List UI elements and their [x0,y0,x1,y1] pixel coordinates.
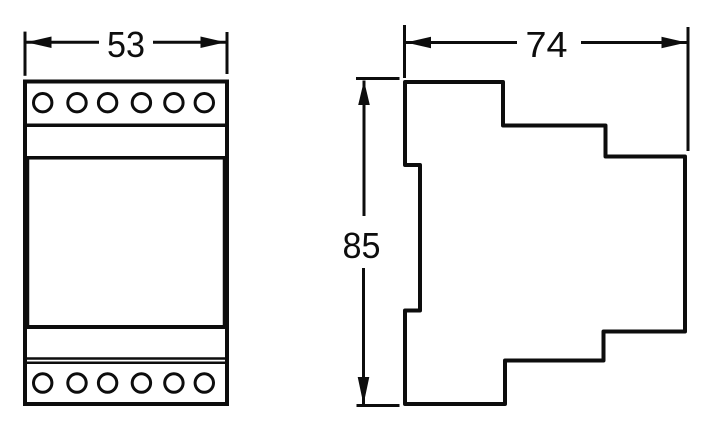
svg-text:74: 74 [526,24,568,65]
svg-text:53: 53 [107,24,145,65]
svg-text:85: 85 [343,225,381,266]
